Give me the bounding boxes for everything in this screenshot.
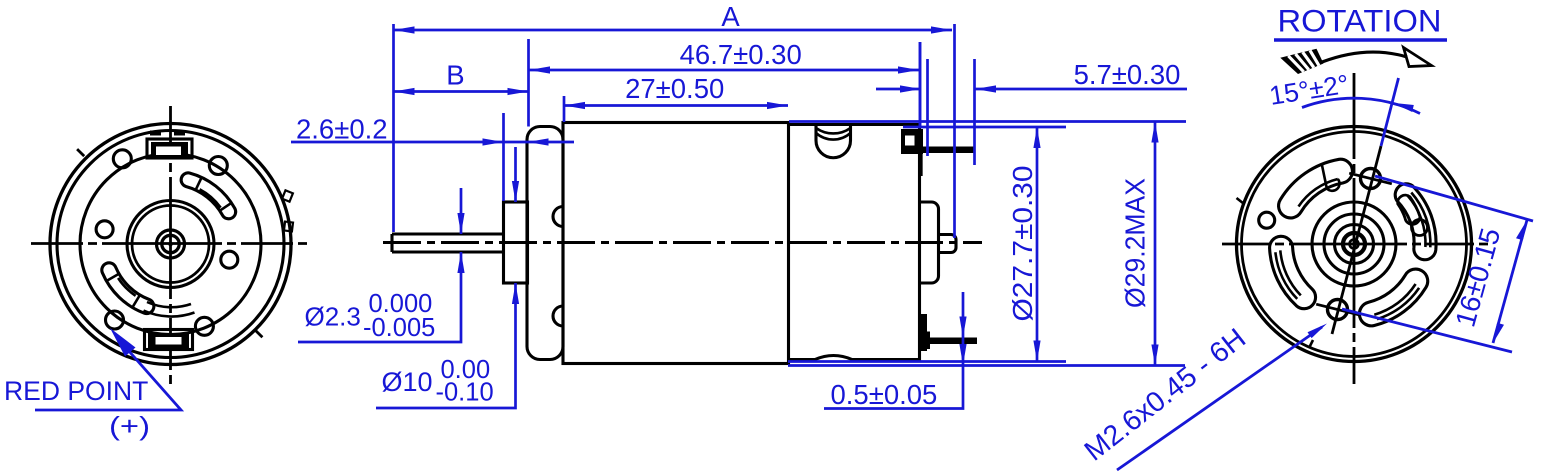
svg-text:5.7±0.30: 5.7±0.30 [1074, 59, 1181, 90]
svg-text:-0.005: -0.005 [363, 314, 435, 342]
svg-text:46.7±0.30: 46.7±0.30 [680, 39, 802, 70]
svg-text:ROTATION: ROTATION [1278, 3, 1442, 39]
svg-text:Ø29.2MAX: Ø29.2MAX [1120, 178, 1151, 308]
svg-text:A: A [721, 1, 740, 32]
svg-text:B: B [446, 60, 464, 91]
svg-text:Ø27.7±0.30: Ø27.7±0.30 [1007, 166, 1038, 322]
svg-text:0.5±0.05: 0.5±0.05 [831, 379, 938, 410]
svg-text:(+): (+) [109, 411, 150, 441]
svg-text:Ø2.3: Ø2.3 [305, 302, 361, 332]
svg-text:-0.10: -0.10 [436, 379, 494, 407]
svg-text:RED POINT: RED POINT [4, 376, 148, 406]
svg-text:2.6±0.2: 2.6±0.2 [296, 114, 388, 145]
svg-text:Ø10: Ø10 [382, 367, 433, 397]
svg-text:27±0.50: 27±0.50 [625, 73, 724, 104]
